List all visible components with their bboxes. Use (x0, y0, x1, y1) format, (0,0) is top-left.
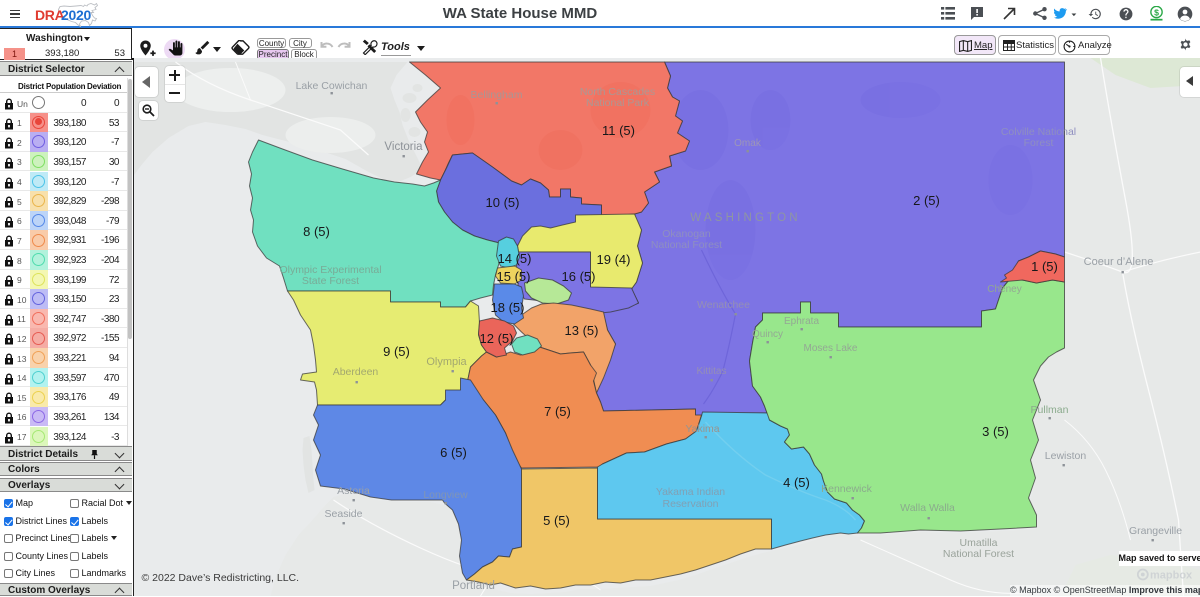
svg-text:mapbox: mapbox (1150, 569, 1193, 581)
svg-text:Seaside: Seaside (324, 508, 362, 520)
svg-text:$: $ (1154, 7, 1159, 17)
svg-text:10 (5): 10 (5) (485, 195, 519, 210)
svg-text:National Forest: National Forest (650, 239, 721, 251)
svg-text:National Forest: National Forest (942, 548, 1013, 560)
svg-text:16 (5): 16 (5) (561, 269, 595, 284)
svg-text:3 (5): 3 (5) (982, 424, 1009, 439)
svg-text:Kennewick: Kennewick (821, 483, 873, 495)
svg-text:Coeur d’Alene: Coeur d’Alene (1083, 256, 1153, 268)
svg-text:Forest: Forest (1023, 137, 1053, 149)
svg-text:Quincy: Quincy (751, 329, 782, 340)
svg-text:Astoria: Astoria (337, 485, 370, 497)
svg-text:Olympia: Olympia (426, 356, 467, 368)
svg-text:13 (5): 13 (5) (564, 323, 598, 338)
svg-text:State Forest: State Forest (301, 275, 358, 287)
svg-text:Omak: Omak (734, 138, 762, 149)
svg-text:15 (5): 15 (5) (496, 269, 530, 284)
svg-text:Yakima: Yakima (685, 423, 719, 435)
svg-text:19 (4): 19 (4) (596, 252, 630, 267)
svg-text:Longview: Longview (423, 489, 468, 501)
svg-text:Wenatchee: Wenatchee (697, 299, 750, 311)
svg-text:4 (5): 4 (5) (783, 475, 810, 490)
svg-text:Victoria: Victoria (384, 141, 423, 153)
svg-text:8 (5): 8 (5) (303, 224, 330, 239)
svg-text:Bellingham: Bellingham (470, 89, 522, 101)
svg-text:WASHINGTON: WASHINGTON (690, 212, 801, 224)
svg-text:14 (5): 14 (5) (497, 251, 531, 266)
svg-text:9 (5): 9 (5) (383, 344, 410, 359)
svg-text:7 (5): 7 (5) (544, 404, 571, 419)
svg-text:Grangeville: Grangeville (1128, 525, 1181, 537)
svg-text:18 (5): 18 (5) (490, 300, 524, 315)
svg-text:Walla Walla: Walla Walla (900, 502, 955, 514)
svg-text:12 (5): 12 (5) (479, 331, 513, 346)
svg-text:Moses Lake: Moses Lake (803, 343, 857, 354)
svg-text:Portland: Portland (452, 580, 495, 592)
svg-text:Lake Cowichan: Lake Cowichan (295, 80, 367, 92)
svg-text:Lewiston: Lewiston (1044, 450, 1086, 462)
svg-text:Yakama Indian: Yakama Indian (655, 486, 724, 498)
svg-text:Ephrata: Ephrata (783, 316, 818, 327)
svg-text:5 (5): 5 (5) (543, 513, 570, 528)
svg-text:11 (5): 11 (5) (602, 123, 635, 138)
svg-text:Pullman: Pullman (1030, 404, 1068, 416)
svg-text:1 (5): 1 (5) (1031, 259, 1058, 274)
svg-text:2 (5): 2 (5) (913, 193, 940, 208)
svg-text:Aberdeen: Aberdeen (332, 366, 378, 378)
svg-text:Kittitas: Kittitas (696, 366, 726, 377)
svg-text:National Park: National Park (585, 97, 649, 109)
svg-text:6 (5): 6 (5) (440, 445, 467, 460)
svg-text:Reservation: Reservation (662, 498, 718, 510)
svg-text:Cheney: Cheney (987, 284, 1021, 295)
